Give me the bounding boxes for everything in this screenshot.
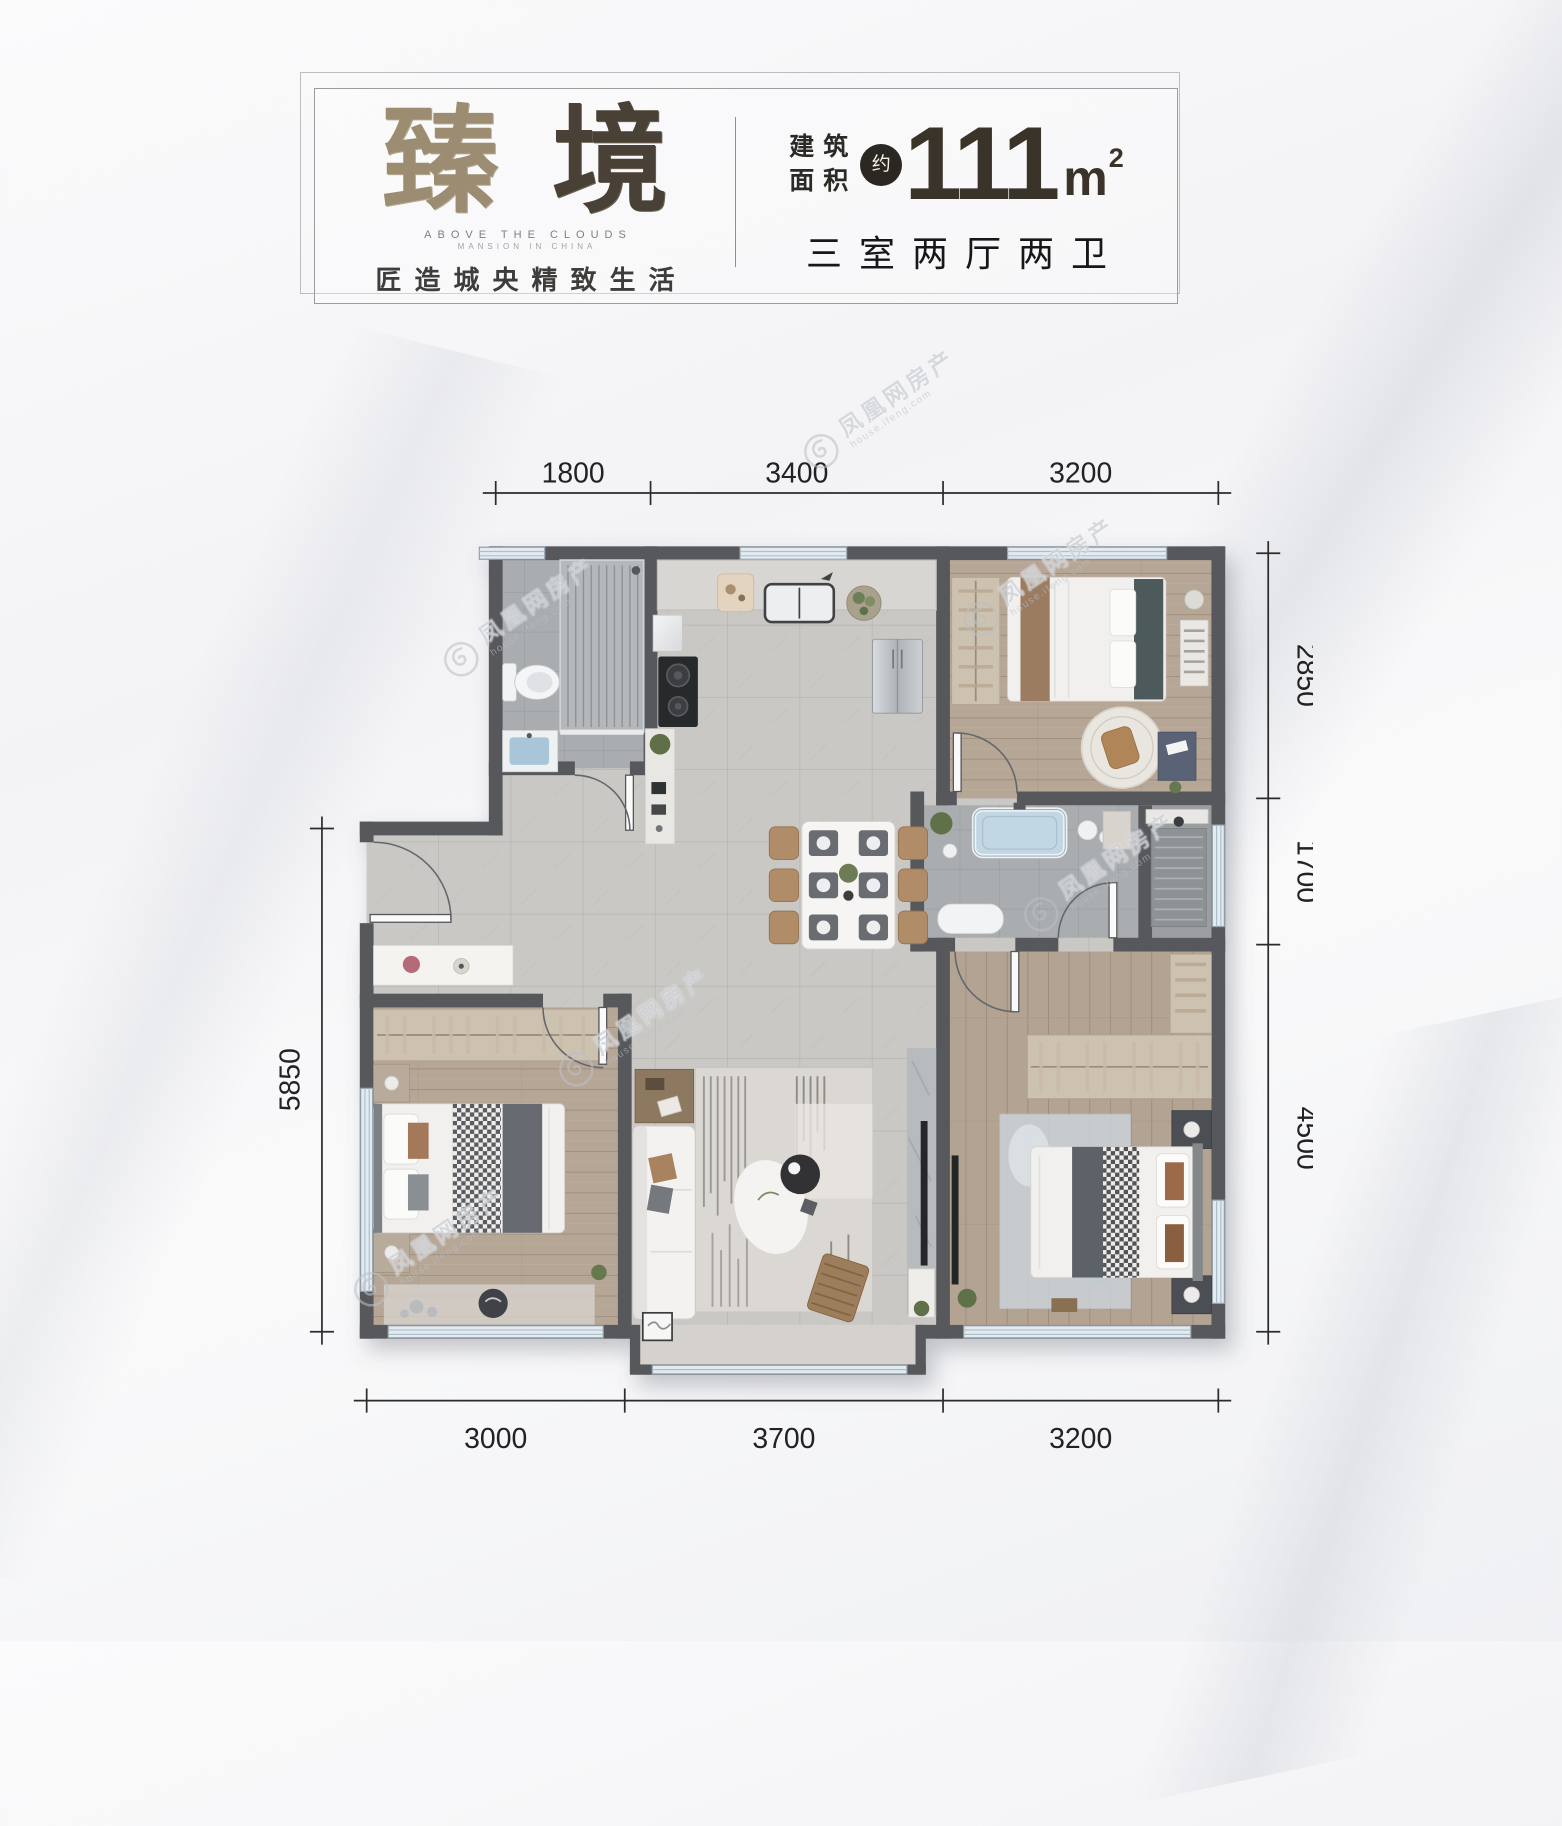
cutting-board-icon <box>718 574 754 612</box>
watermark-subtext: house.ifeng.com <box>849 366 967 451</box>
flowers-icon <box>1185 590 1204 609</box>
project-name-char-2: 境 <box>552 99 722 227</box>
stove-icon <box>658 656 698 727</box>
area-prefix-line2: 面积 <box>789 168 857 196</box>
floor-plan-svg: 1800 3400 3200 3000 3700 3200 2850 1700 … <box>272 450 1313 1478</box>
shower-head-icon <box>632 566 641 575</box>
project-name-char-1: 臻 <box>382 99 552 227</box>
window-bedroom3-bay <box>388 1326 603 1338</box>
bathtub-icon <box>974 803 1065 856</box>
floor-art-icon <box>643 1313 672 1341</box>
bed-icon <box>1008 577 1166 701</box>
window-master-right <box>1212 1200 1224 1303</box>
side-cabinet-icon <box>909 1269 935 1317</box>
toilet-icon <box>938 904 1003 933</box>
dim-bottom-2: 3700 <box>752 1423 815 1455</box>
area-value: 111 <box>904 119 1057 211</box>
building <box>360 546 1225 1374</box>
title-right-block: 建筑 面积 约 111 m2 三室两厅两卫 <box>736 89 1177 303</box>
dim-right-1: 2850 <box>1290 644 1313 707</box>
plant-icon <box>930 812 952 834</box>
towel-icon <box>1078 821 1097 840</box>
tray-table-icon <box>780 1155 820 1195</box>
living-bay-floor <box>639 1325 925 1365</box>
dim-left-1: 5850 <box>275 1048 307 1111</box>
tv-icon <box>952 1155 959 1284</box>
project-name: 臻境 <box>315 105 789 221</box>
vegetable-basket-icon <box>847 586 881 620</box>
floor-plan: 1800 3400 3200 3000 3700 3200 2850 1700 … <box>272 450 1313 1478</box>
bath-shelf-icon <box>1103 811 1131 849</box>
area-row: 建筑 面积 约 111 m2 <box>736 119 1177 211</box>
watermark-text: 凤凰网房产 <box>834 344 961 441</box>
plant-icon <box>914 1301 929 1316</box>
window-bedroom2 <box>1008 547 1167 559</box>
kitchen-island <box>645 729 674 844</box>
round-rug-icon <box>1082 707 1163 788</box>
plant-icon <box>1169 781 1181 793</box>
dim-bottom-1: 3000 <box>464 1423 527 1455</box>
bed-icon <box>374 1104 565 1233</box>
dining-area <box>769 822 927 949</box>
window-bath1 <box>479 547 544 559</box>
bowl-icon <box>843 890 853 900</box>
window-kitchen <box>740 547 847 559</box>
plant-icon <box>650 734 671 755</box>
drain-mat-icon <box>1151 829 1206 927</box>
bath1-sink-icon <box>503 730 558 771</box>
project-subtitle-en2: MANSION IN CHINA <box>315 242 739 251</box>
window-laundry <box>1212 825 1224 927</box>
toilet-icon <box>503 663 560 701</box>
tv-icon <box>921 1121 928 1266</box>
dim-top-2: 3400 <box>765 458 828 490</box>
area-unit: m2 <box>1063 141 1124 211</box>
faucet-icon <box>1174 816 1184 826</box>
area-unit-base: m <box>1063 150 1107 206</box>
dim-top-1: 1800 <box>542 458 605 490</box>
shower-threshold <box>560 730 643 735</box>
area-prefix: 建筑 面积 <box>789 134 848 195</box>
plant-icon <box>591 1265 606 1280</box>
console-table-icon <box>374 946 513 986</box>
kitchen-cabinet <box>653 615 682 651</box>
title-left-block: 臻境 ABOVE THE CLOUDS MANSION IN CHINA 匠造城… <box>315 89 735 303</box>
dim-right-3: 4500 <box>1290 1107 1313 1170</box>
project-subtitle-en: ABOVE THE CLOUDS <box>315 229 741 241</box>
sofa-icon <box>633 1126 695 1319</box>
window-living-bay <box>652 1365 907 1374</box>
hall-console <box>374 946 513 986</box>
approx-badge: 约 <box>860 144 902 186</box>
vase-icon <box>943 844 957 858</box>
bed-icon <box>1031 1143 1203 1281</box>
area-unit-exponent: 2 <box>1109 143 1124 173</box>
dim-top-3: 3200 <box>1049 458 1112 490</box>
wardrobe-icon <box>952 577 1000 704</box>
layout-summary: 三室两厅两卫 <box>736 225 1194 277</box>
tray-icon <box>1051 1298 1077 1312</box>
pouf-icon <box>479 1289 508 1318</box>
fridge-icon <box>873 639 923 713</box>
window-master-bottom <box>964 1326 1191 1338</box>
project-tagline: 匠造城央精致生活 <box>315 260 748 297</box>
area-prefix-line1: 建筑 <box>789 134 857 162</box>
pillow-icon <box>647 1185 674 1214</box>
dim-right-2: 1700 <box>1290 840 1313 903</box>
centerpiece-plant-icon <box>839 864 858 883</box>
flowers-icon <box>403 956 420 973</box>
plant-icon <box>958 1289 977 1308</box>
window-bedroom3-left <box>361 1088 373 1291</box>
title-card: 臻境 ABOVE THE CLOUDS MANSION IN CHINA 匠造城… <box>314 88 1178 304</box>
dim-bottom-3: 3200 <box>1049 1423 1112 1455</box>
media-console-icon <box>635 1069 693 1122</box>
shower-area <box>560 560 643 732</box>
wardrobe-icon <box>374 1009 605 1061</box>
